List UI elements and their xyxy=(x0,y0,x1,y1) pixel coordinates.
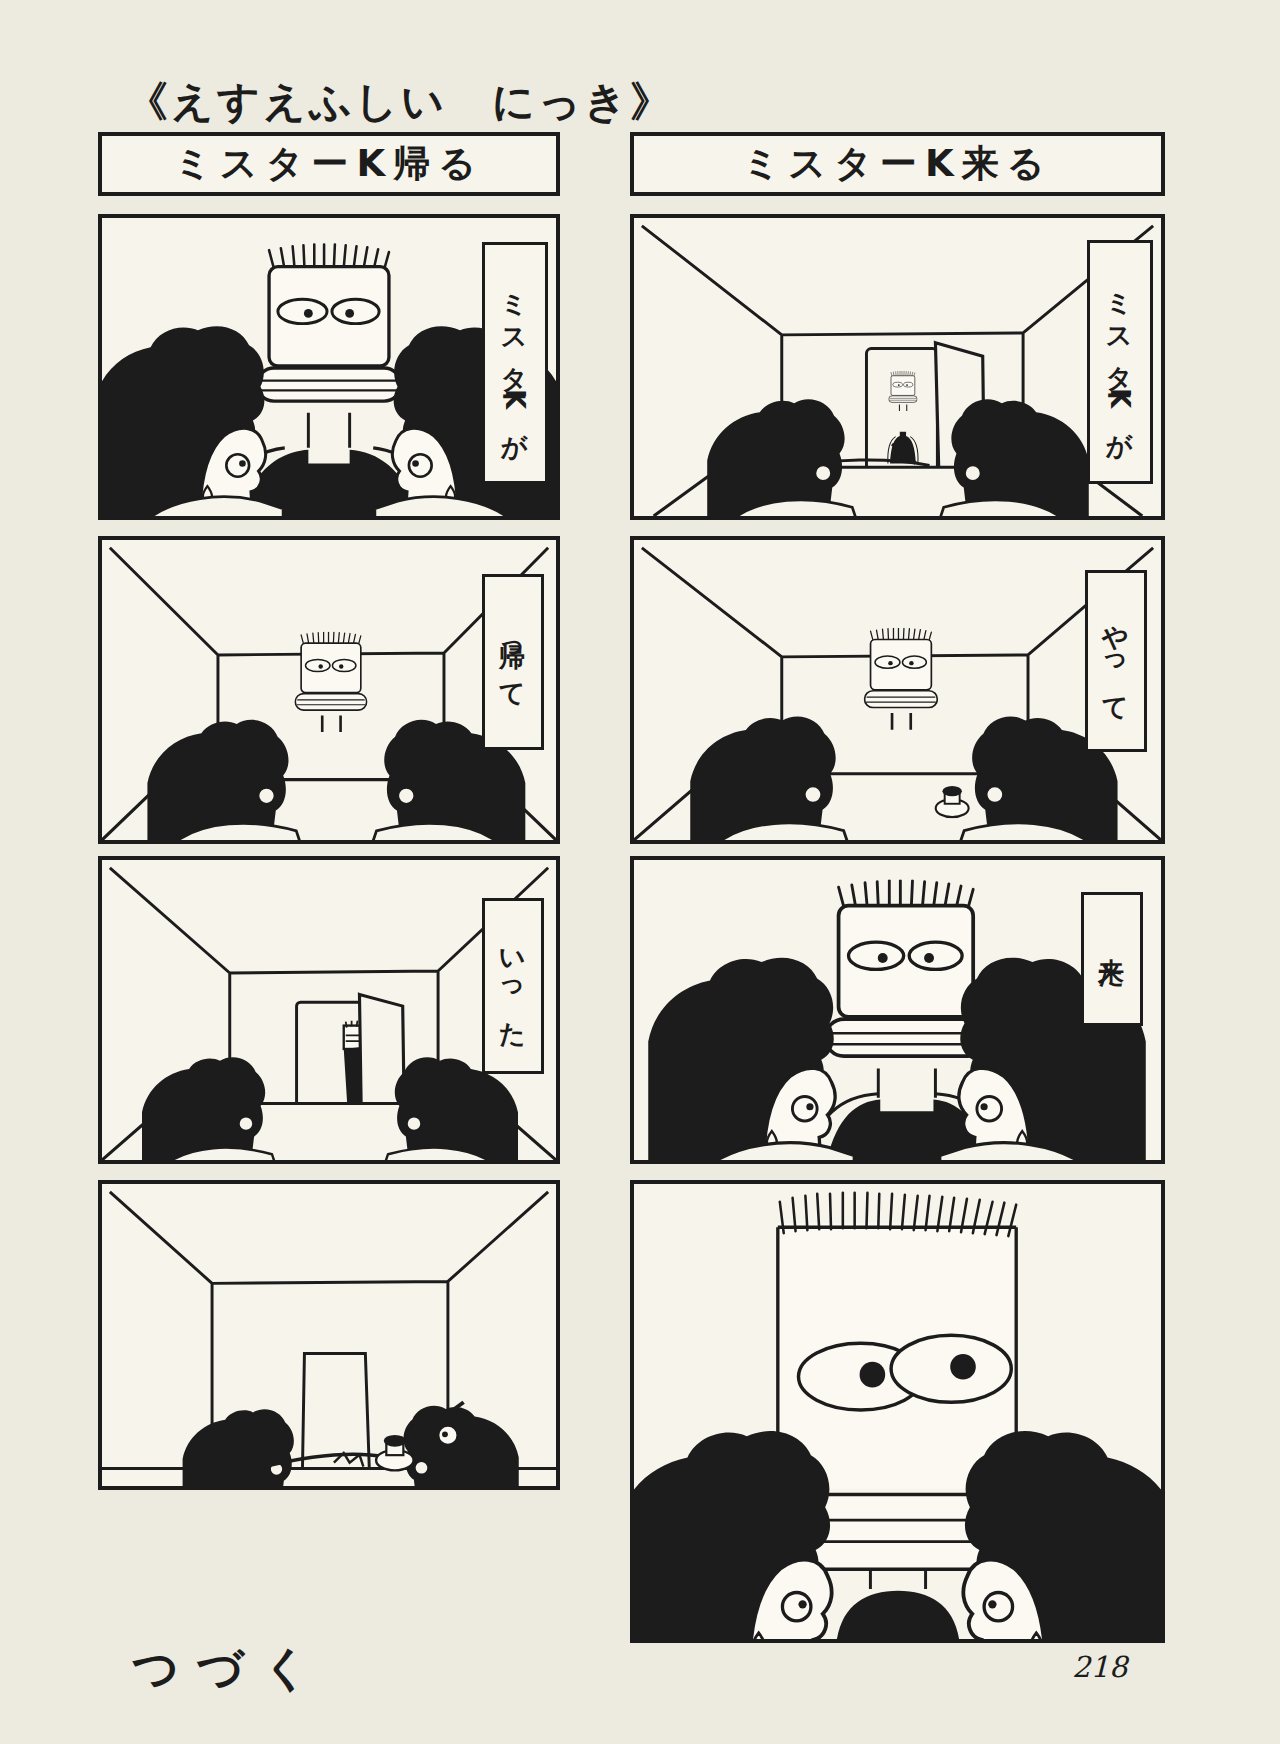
to-be-continued-note: つづく xyxy=(132,1638,327,1700)
panel-left-4 xyxy=(98,1180,560,1490)
speech-bubble: 帰って xyxy=(482,574,544,750)
page-title: 《えすえふしい にっき》 xyxy=(126,74,675,130)
panel-right-2: やって xyxy=(630,536,1165,844)
speech-bubble: やって xyxy=(1085,570,1147,752)
speech-bubble: 来た xyxy=(1081,892,1143,1026)
speech-bubble: ミスターKが xyxy=(1087,240,1153,484)
panel-left-4-artwork xyxy=(102,1184,556,1486)
speech-bubble: ミスターKが xyxy=(482,242,548,484)
panel-left-1: ミスターKが xyxy=(98,214,560,520)
panel-right-1-artwork xyxy=(634,218,1161,516)
panel-right-4-artwork xyxy=(634,1184,1161,1639)
strip-header-right: ミスターK来る xyxy=(630,132,1165,196)
strip-header-left: ミスターK帰る xyxy=(98,132,560,196)
panel-right-3: 来た xyxy=(630,856,1165,1164)
panel-right-1: ミスターKが xyxy=(630,214,1165,520)
speech-bubble: いった xyxy=(482,898,544,1074)
panel-right-4 xyxy=(630,1180,1165,1643)
panel-right-2-artwork xyxy=(634,540,1161,840)
panel-left-3: いった xyxy=(98,856,560,1164)
panel-left-2: 帰って xyxy=(98,536,560,844)
page-number: 218 xyxy=(1072,1650,1127,1684)
